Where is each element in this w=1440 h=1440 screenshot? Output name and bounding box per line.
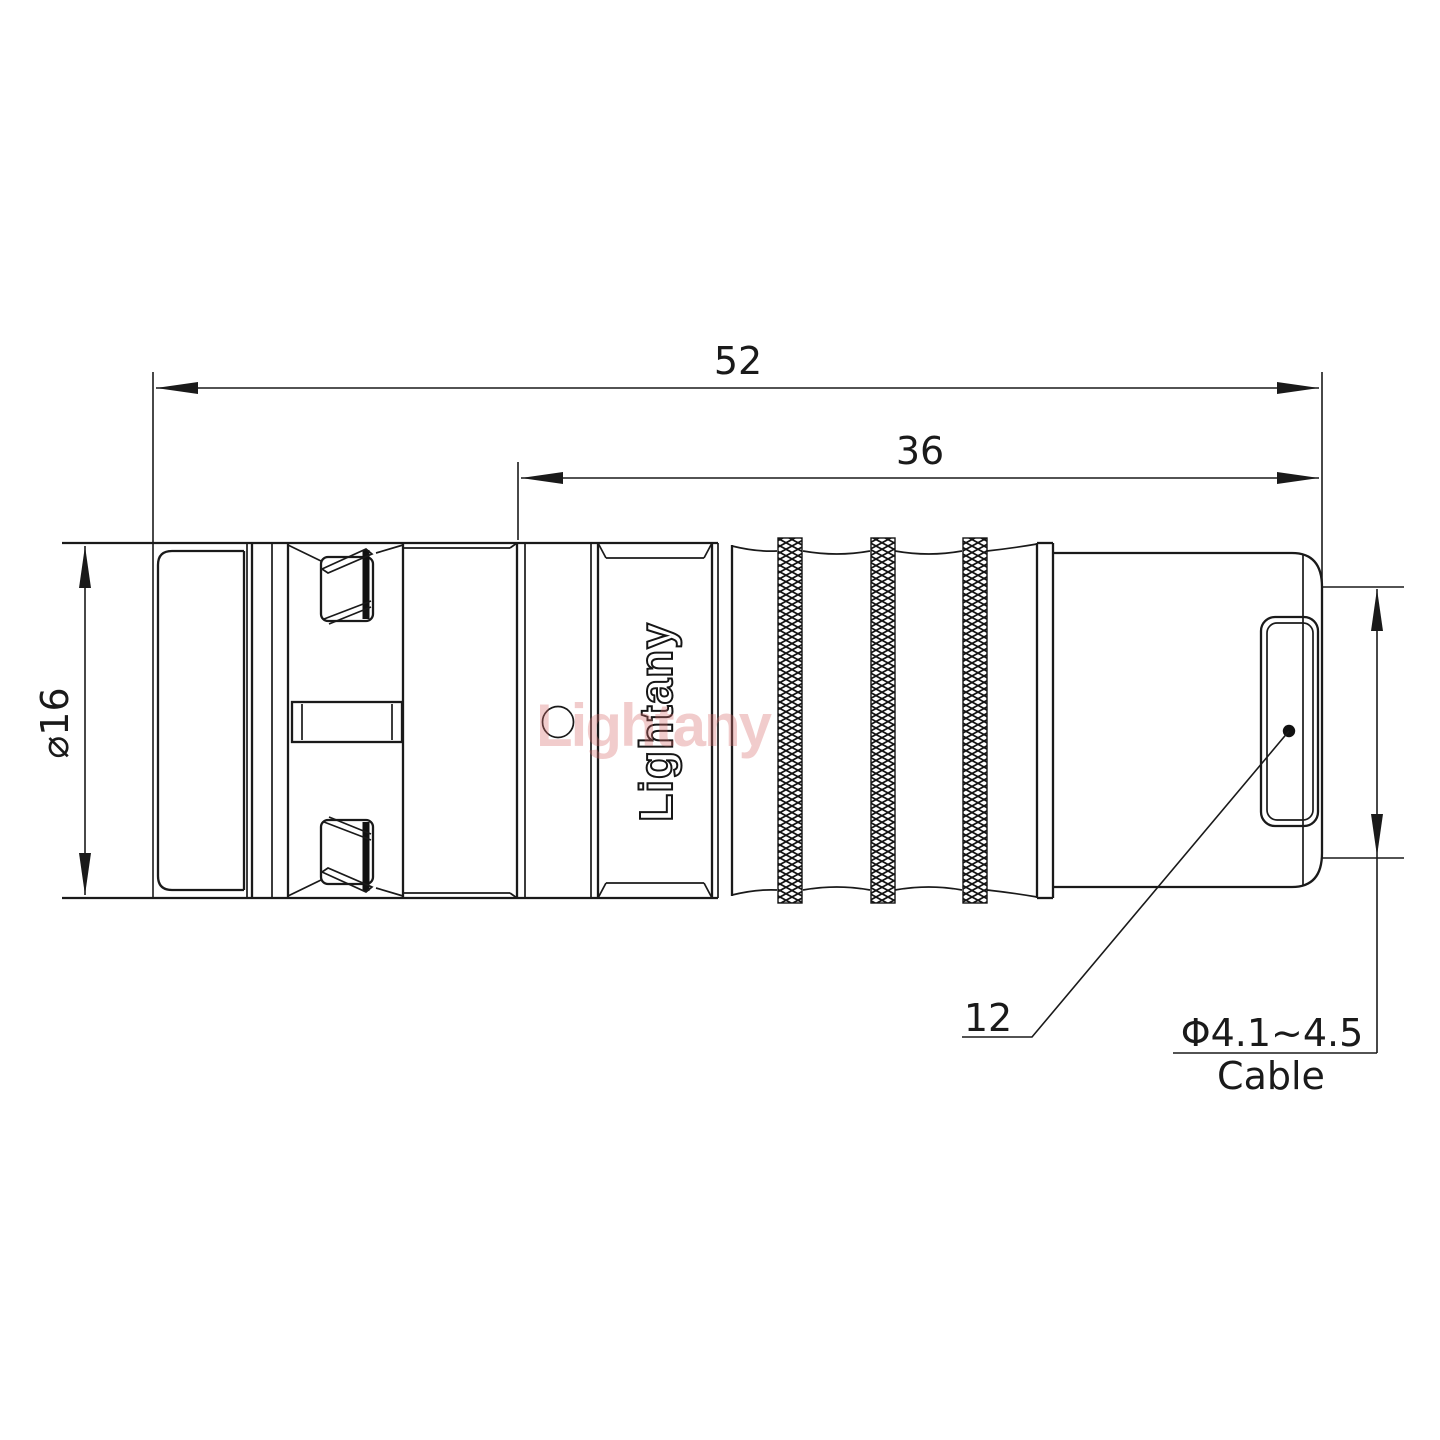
rear-band bbox=[1037, 543, 1053, 898]
rear-bushing bbox=[1053, 553, 1322, 887]
arrow-right-icon bbox=[1277, 382, 1319, 394]
dim-overall-length-label: 52 bbox=[714, 339, 762, 383]
dimension-36: 36 bbox=[518, 429, 1319, 540]
knurled-barrel bbox=[732, 538, 1037, 903]
arrow-left-icon bbox=[156, 382, 198, 394]
cable-recess-inner bbox=[1267, 623, 1313, 820]
front-sleeve bbox=[158, 543, 252, 898]
arrow-down-icon bbox=[1371, 814, 1383, 856]
leader-12: 12 bbox=[962, 725, 1295, 1040]
dimension-cable: Φ4.1~4.5 Cable bbox=[1173, 587, 1404, 1098]
cable-label: Cable bbox=[1217, 1054, 1325, 1098]
knurl-ring-1 bbox=[778, 538, 802, 903]
dimension-diameter-16: ⌀16 bbox=[33, 543, 155, 898]
connector-drawing-svg: 52 36 ⌀16 Φ4.1~4.5 Cable 12 bbox=[0, 0, 1440, 1440]
knurl-ring-2 bbox=[871, 538, 895, 903]
technical-drawing-canvas: 52 36 ⌀16 Φ4.1~4.5 Cable 12 bbox=[0, 0, 1440, 1440]
cable-diameter-label: Φ4.1~4.5 bbox=[1181, 1011, 1364, 1055]
dim-diameter-label: ⌀16 bbox=[33, 687, 77, 758]
arrow-up-icon bbox=[79, 546, 91, 588]
dim-mid-length-label: 36 bbox=[896, 429, 944, 473]
arrow-down-icon bbox=[79, 853, 91, 895]
dimension-52: 52 bbox=[153, 339, 1322, 898]
cable-recess-outer bbox=[1261, 617, 1318, 826]
arrow-left-icon bbox=[521, 472, 563, 484]
dim-rear-length-label: 12 bbox=[964, 996, 1012, 1040]
bayonet-slot-bottom bbox=[288, 817, 403, 896]
arrow-right-icon bbox=[1277, 472, 1319, 484]
slot-middle bbox=[292, 702, 402, 742]
slot-carrier bbox=[272, 543, 517, 898]
bayonet-slot-top bbox=[288, 545, 403, 624]
arrow-up-icon bbox=[1371, 589, 1383, 631]
knurl-ring-3 bbox=[963, 538, 987, 903]
watermark: Lightany bbox=[536, 692, 773, 759]
